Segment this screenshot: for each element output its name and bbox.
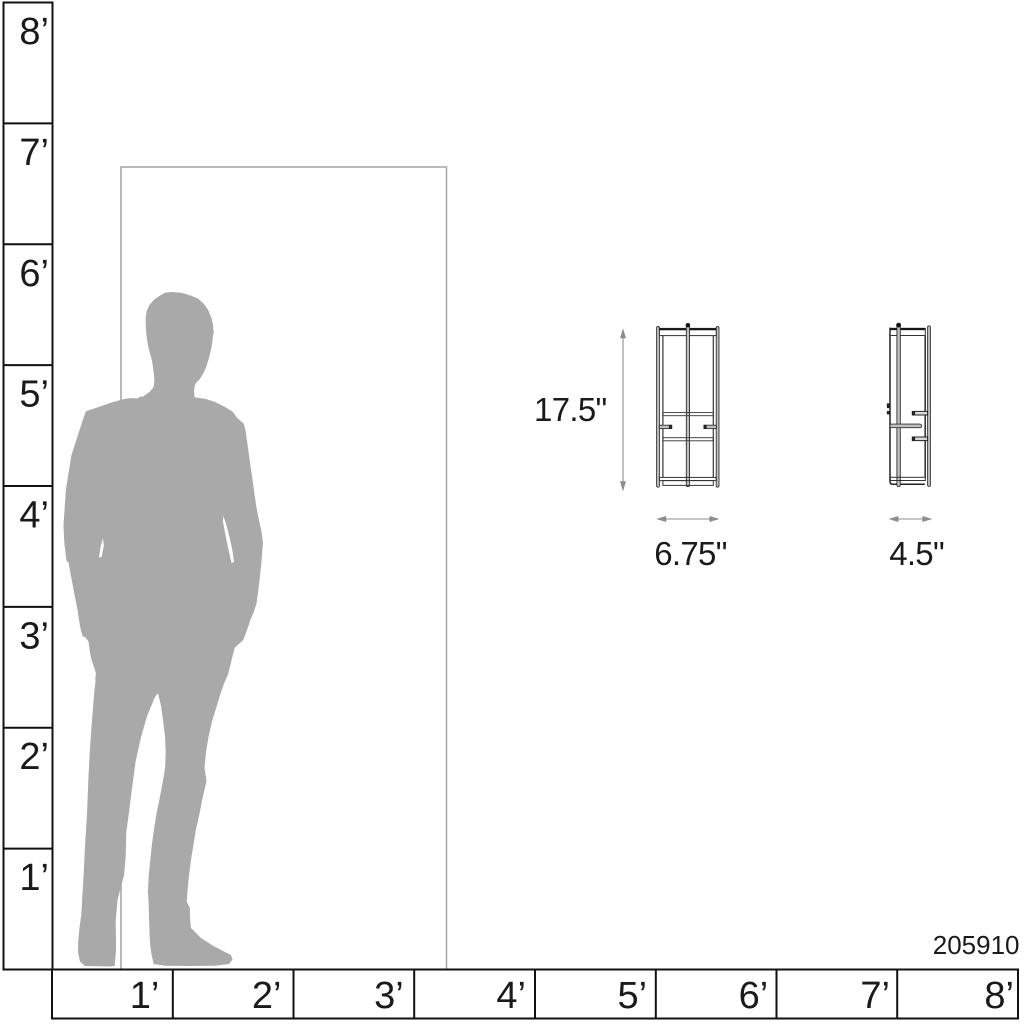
svg-text:6’: 6’ xyxy=(19,253,49,295)
svg-text:8’: 8’ xyxy=(984,975,1014,1017)
svg-text:2’: 2’ xyxy=(19,736,49,778)
svg-text:8’: 8’ xyxy=(19,11,49,53)
svg-text:5’: 5’ xyxy=(19,374,49,416)
svg-text:4.5": 4.5" xyxy=(889,535,944,572)
svg-text:2’: 2’ xyxy=(252,975,282,1017)
svg-text:1’: 1’ xyxy=(19,857,49,899)
svg-text:3’: 3’ xyxy=(19,615,49,657)
svg-text:1’: 1’ xyxy=(130,975,160,1017)
svg-text:6’: 6’ xyxy=(739,975,769,1017)
svg-text:7’: 7’ xyxy=(860,975,890,1017)
svg-text:5’: 5’ xyxy=(618,975,648,1017)
svg-text:205910: 205910 xyxy=(933,930,1020,960)
svg-text:6.75": 6.75" xyxy=(654,535,726,572)
svg-text:4’: 4’ xyxy=(496,975,526,1017)
svg-text:17.5": 17.5" xyxy=(534,391,606,428)
svg-text:7’: 7’ xyxy=(19,132,49,174)
svg-text:4’: 4’ xyxy=(19,495,49,537)
svg-text:3’: 3’ xyxy=(374,975,404,1017)
